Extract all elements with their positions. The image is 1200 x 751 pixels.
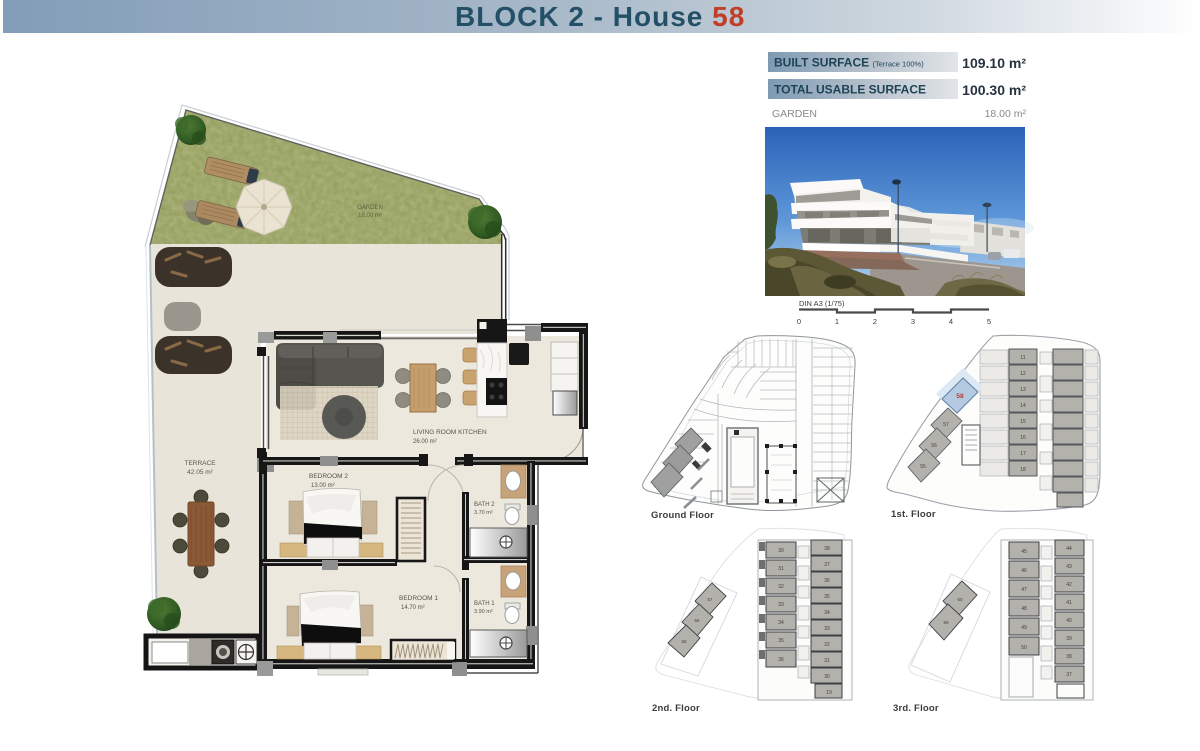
svg-text:18.00 m²: 18.00 m² [985, 108, 1027, 120]
svg-text:3rd. Floor: 3rd. Floor [893, 703, 939, 714]
svg-text:GARDEN: GARDEN [357, 205, 383, 211]
svg-text:36: 36 [824, 578, 830, 584]
svg-text:17: 17 [1020, 451, 1026, 457]
svg-text:40: 40 [1066, 618, 1072, 624]
svg-text:1st. Floor: 1st. Floor [891, 509, 936, 520]
svg-text:BLOCK 2 - House 58: BLOCK 2 - House 58 [455, 1, 745, 32]
svg-text:LIVING ROOM KITCHEN: LIVING ROOM KITCHEN [413, 429, 487, 436]
svg-text:3.70 m²: 3.70 m² [474, 510, 493, 516]
svg-text:2nd. Floor: 2nd. Floor [652, 703, 700, 714]
svg-text:57: 57 [943, 422, 949, 428]
svg-text:55: 55 [681, 639, 687, 644]
svg-text:32: 32 [824, 642, 830, 648]
svg-text:30: 30 [824, 674, 830, 680]
svg-text:56: 56 [694, 618, 700, 623]
svg-text:12: 12 [1020, 371, 1026, 377]
svg-text:46: 46 [1021, 568, 1027, 574]
svg-text:47: 47 [1021, 587, 1027, 593]
svg-text:DIN A3 (1/75): DIN A3 (1/75) [799, 299, 845, 308]
svg-text:32: 32 [778, 584, 784, 590]
svg-text:TERRACE: TERRACE [184, 460, 216, 467]
svg-text:BEDROOM 2: BEDROOM 2 [309, 473, 348, 480]
svg-text:TOTAL USABLE SURFACE: TOTAL USABLE SURFACE [774, 83, 926, 97]
svg-text:39: 39 [1066, 636, 1072, 642]
svg-text:16: 16 [1020, 435, 1026, 441]
svg-text:109.10 m²: 109.10 m² [962, 55, 1026, 71]
svg-text:37: 37 [1066, 672, 1072, 678]
svg-text:13: 13 [1020, 387, 1026, 393]
svg-text:38: 38 [1066, 654, 1072, 660]
svg-text:BATH 2: BATH 2 [474, 502, 495, 508]
svg-text:4: 4 [949, 317, 953, 326]
svg-text:0: 0 [797, 317, 801, 326]
svg-text:58: 58 [956, 393, 964, 400]
svg-text:41: 41 [1066, 600, 1072, 606]
svg-text:33: 33 [824, 626, 830, 632]
svg-text:34: 34 [778, 620, 784, 626]
svg-text:18: 18 [1020, 467, 1026, 473]
svg-text:3: 3 [911, 317, 915, 326]
svg-text:35: 35 [824, 594, 830, 600]
svg-text:34: 34 [824, 610, 830, 616]
svg-text:35: 35 [778, 638, 784, 644]
svg-text:1: 1 [835, 317, 839, 326]
svg-text:11: 11 [1020, 355, 1025, 361]
svg-text:45: 45 [1021, 549, 1027, 555]
svg-text:36: 36 [778, 657, 784, 663]
svg-text:42.05 m²: 42.05 m² [187, 469, 213, 476]
svg-text:14: 14 [1020, 403, 1026, 409]
svg-text:2: 2 [873, 317, 877, 326]
svg-text:18.00 m²: 18.00 m² [358, 213, 382, 219]
svg-text:59: 59 [943, 620, 949, 625]
svg-text:60: 60 [957, 597, 963, 602]
svg-text:30: 30 [778, 548, 784, 554]
svg-text:48: 48 [1021, 606, 1027, 612]
svg-text:GARDEN: GARDEN [772, 108, 817, 120]
svg-text:31: 31 [778, 566, 784, 572]
svg-text:50: 50 [1021, 645, 1027, 651]
svg-text:57: 57 [707, 597, 713, 602]
svg-text:33: 33 [778, 602, 784, 608]
svg-text:5: 5 [987, 317, 991, 326]
svg-text:49: 49 [1021, 625, 1027, 631]
svg-text:3.90 m²: 3.90 m² [474, 609, 493, 615]
svg-text:44: 44 [1066, 546, 1072, 552]
svg-text:37: 37 [824, 562, 830, 568]
svg-text:42: 42 [1066, 582, 1072, 588]
svg-text:100.30 m²: 100.30 m² [962, 82, 1026, 98]
svg-text:14.70 m²: 14.70 m² [401, 605, 425, 611]
svg-text:Ground Floor: Ground Floor [651, 510, 714, 521]
svg-text:BEDROOM 1: BEDROOM 1 [399, 595, 438, 602]
svg-text:55: 55 [920, 464, 926, 470]
svg-text:56: 56 [931, 443, 937, 449]
svg-text:38: 38 [824, 546, 830, 552]
svg-text:31: 31 [824, 658, 830, 664]
svg-text:BATH 1: BATH 1 [474, 601, 495, 607]
svg-text:15: 15 [1020, 419, 1026, 425]
svg-text:43: 43 [1066, 564, 1072, 570]
svg-text:26.00 m²: 26.00 m² [413, 439, 437, 445]
svg-text:19: 19 [826, 690, 832, 696]
